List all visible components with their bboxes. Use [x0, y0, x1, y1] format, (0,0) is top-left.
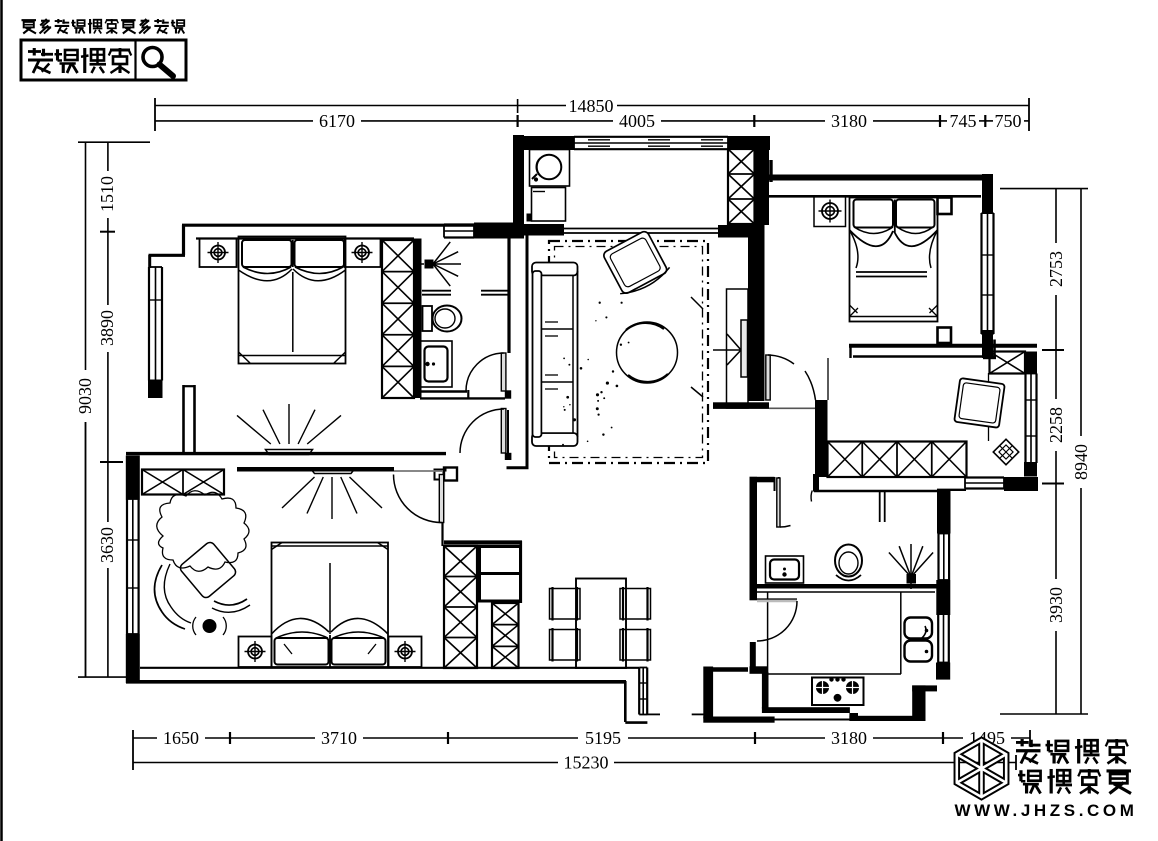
svg-text:5195: 5195 [585, 728, 621, 748]
svg-text:WWW.JHZS.COM: WWW.JHZS.COM [955, 801, 1138, 820]
svg-text:15230: 15230 [564, 753, 609, 773]
svg-text:8940: 8940 [1071, 444, 1091, 480]
svg-text:1650: 1650 [163, 728, 199, 748]
svg-text:3890: 3890 [97, 310, 117, 346]
svg-text:750: 750 [995, 111, 1022, 131]
svg-text:1510: 1510 [97, 176, 117, 212]
svg-text:9030: 9030 [75, 378, 95, 414]
svg-text:3930: 3930 [1046, 587, 1066, 623]
svg-text:4005: 4005 [619, 111, 655, 131]
svg-text:2753: 2753 [1046, 251, 1066, 287]
svg-text:3710: 3710 [321, 728, 357, 748]
svg-text:14850: 14850 [569, 96, 614, 116]
svg-text:2258: 2258 [1046, 407, 1066, 443]
svg-text:3180: 3180 [831, 111, 867, 131]
svg-text:745: 745 [950, 111, 977, 131]
svg-text:3630: 3630 [97, 527, 117, 563]
svg-text:3180: 3180 [831, 728, 867, 748]
svg-text:6170: 6170 [319, 111, 355, 131]
